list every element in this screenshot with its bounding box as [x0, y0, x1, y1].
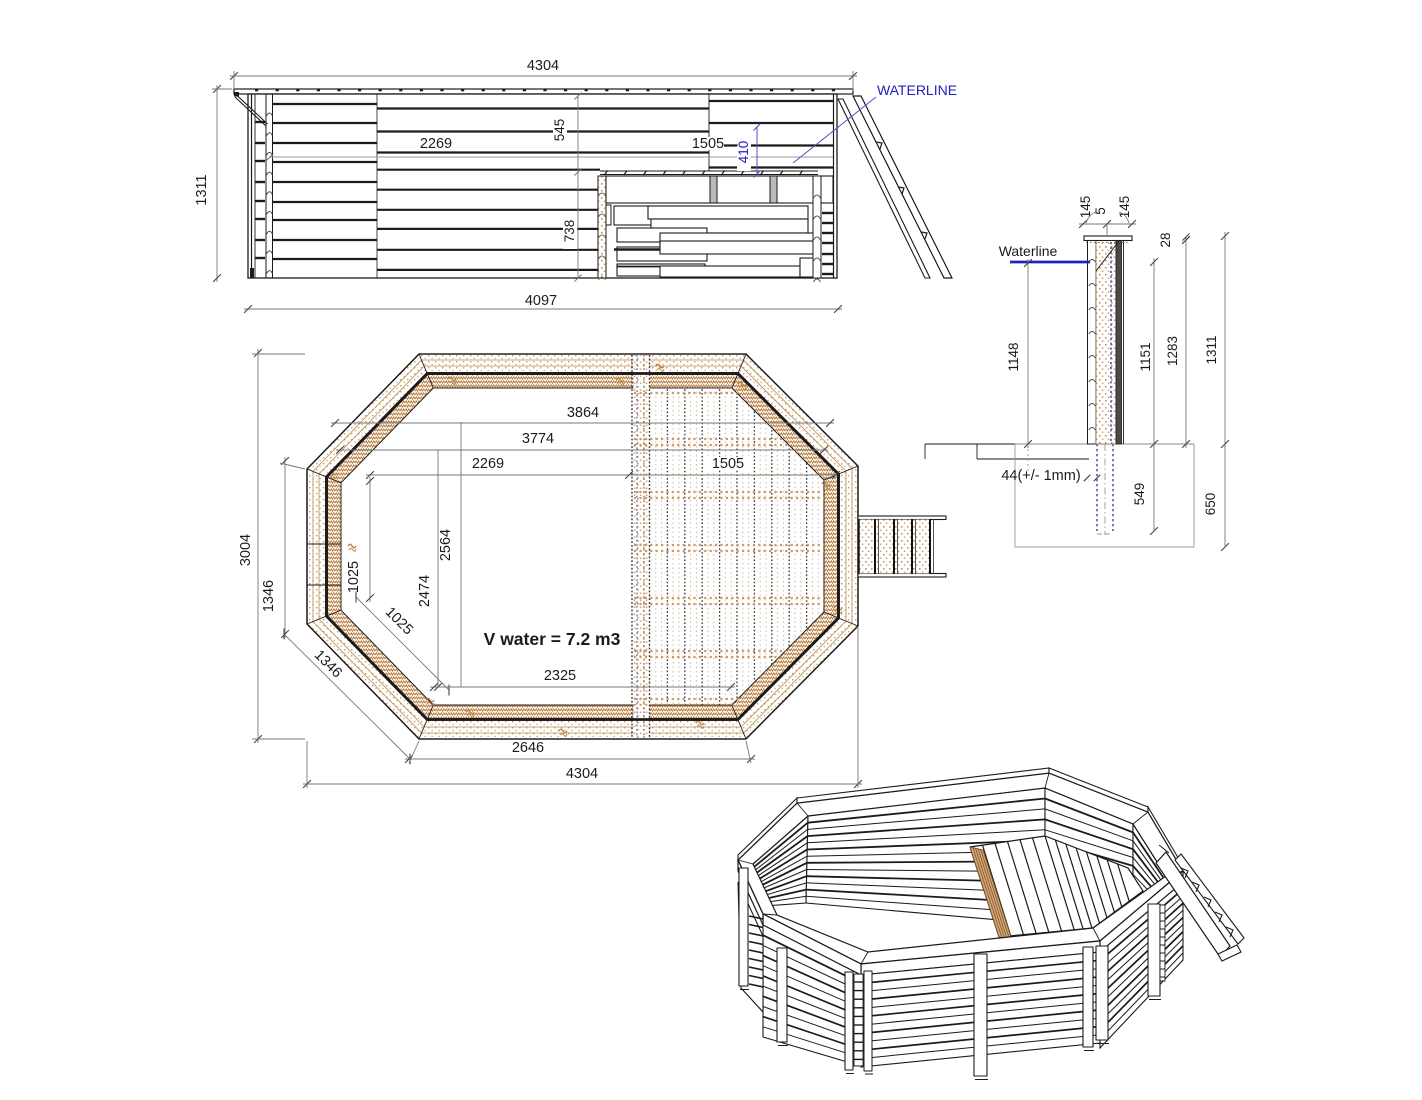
- svg-text:1346: 1346: [261, 580, 277, 612]
- svg-text:2325: 2325: [544, 668, 576, 684]
- svg-text:2269: 2269: [420, 136, 452, 152]
- svg-text:1505: 1505: [712, 456, 744, 472]
- svg-text:1311: 1311: [1204, 335, 1219, 364]
- svg-text:410: 410: [736, 141, 751, 164]
- svg-text:738: 738: [562, 220, 577, 243]
- svg-text:650: 650: [1203, 493, 1218, 516]
- svg-text:WATERLINE: WATERLINE: [877, 82, 957, 98]
- svg-text:1025: 1025: [346, 561, 362, 593]
- svg-text:1505: 1505: [692, 136, 724, 152]
- svg-text:4097: 4097: [525, 293, 557, 309]
- svg-text:2474: 2474: [417, 575, 433, 607]
- svg-text:1151: 1151: [1138, 342, 1153, 371]
- svg-text:Waterline: Waterline: [999, 243, 1058, 259]
- svg-text:3864: 3864: [567, 405, 599, 421]
- svg-text:V water = 7.2 m3: V water = 7.2 m3: [484, 629, 621, 649]
- svg-text:3774: 3774: [522, 431, 554, 447]
- svg-text:4304: 4304: [566, 766, 598, 782]
- svg-text:2646: 2646: [512, 740, 544, 756]
- svg-text:44(+/- 1mm): 44(+/- 1mm): [1001, 468, 1080, 484]
- svg-text:1283: 1283: [1165, 336, 1180, 366]
- svg-text:549: 549: [1132, 483, 1147, 506]
- svg-text:2269: 2269: [472, 456, 504, 472]
- svg-text:2564: 2564: [438, 529, 454, 561]
- svg-text:545: 545: [552, 119, 567, 142]
- svg-text:3004: 3004: [238, 534, 254, 566]
- svg-text:1311: 1311: [194, 174, 210, 205]
- svg-text:1148: 1148: [1006, 342, 1021, 371]
- svg-text:28: 28: [1158, 232, 1173, 247]
- svg-text:4304: 4304: [527, 58, 559, 74]
- svg-text:5: 5: [1093, 207, 1108, 215]
